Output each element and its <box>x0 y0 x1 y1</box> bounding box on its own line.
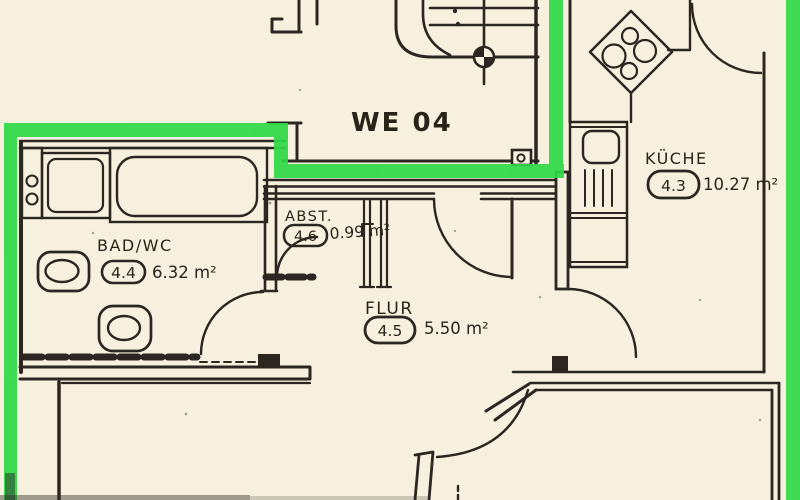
highlight-segment-top-left <box>4 123 287 137</box>
room-area: 10.27 m² <box>703 175 778 194</box>
highlight-segment-right <box>786 0 800 500</box>
room-name: BAD/WC <box>97 236 173 255</box>
highlight-segment-mid <box>274 164 564 178</box>
highlight-segment-up <box>549 0 563 178</box>
room-name: ABST. <box>285 209 333 225</box>
stair-dot <box>453 9 457 13</box>
room-number: 4.4 <box>111 264 136 282</box>
room-number: 4.6 <box>294 229 317 245</box>
floor-plan-svg: WE 04 BAD/WC 4.4 6.32 m² ABST. 4.6 0.99 … <box>0 0 800 500</box>
room-area: 6.32 m² <box>152 263 217 282</box>
highlight-segment-left <box>4 123 17 500</box>
room-number: 4.5 <box>378 322 403 340</box>
wall-box <box>512 150 531 165</box>
flur-kitchen-wall <box>556 172 568 289</box>
unit-label: WE 04 <box>351 108 453 138</box>
room-area: 5.50 m² <box>424 319 489 338</box>
scan-edge-smudge <box>0 495 250 500</box>
stair-dot <box>456 22 460 26</box>
room-name: KÜCHE <box>645 149 708 168</box>
floor-plan-scan: WE 04 BAD/WC 4.4 6.32 m² ABST. 4.6 0.99 … <box>0 0 800 500</box>
room-number: 4.3 <box>661 177 686 195</box>
scan-edge-smudge <box>250 496 430 500</box>
wall-step <box>552 356 568 372</box>
